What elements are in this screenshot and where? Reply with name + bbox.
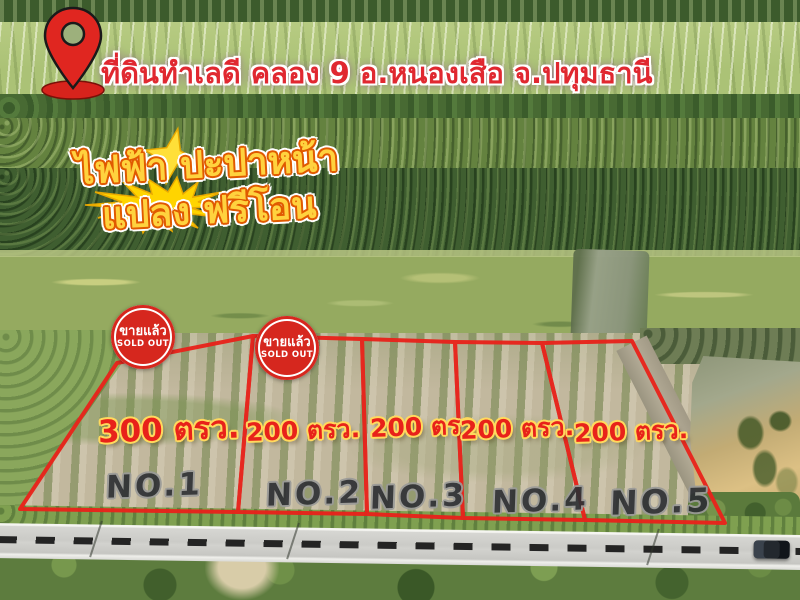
- plot-5-number-label: NO.5: [609, 480, 713, 523]
- plot-2-size-label: 200 ตรว.: [245, 409, 360, 453]
- plot-1-size-label: 300 ตรว.: [97, 402, 240, 457]
- plot-2-number-label: NO.2: [265, 474, 363, 513]
- plot-4-size-label: 200 ตรว.: [459, 407, 574, 451]
- plot-3-number-label: NO.3: [369, 477, 467, 516]
- land-sale-ad-poster: 300 ตรว. 200 ตรว. 200 ตรว. 200 ตรว. 200 …: [0, 0, 800, 600]
- sold-out-badge-plot-2: ขายแล้ว SOLD OUT: [255, 316, 319, 380]
- feature-text-block: ไฟฟ้า ปะปาหน้า แปลง ฟรีโอน: [46, 134, 370, 243]
- plot-5-size-label: 200 ตรว.: [573, 410, 688, 454]
- ad-title: ที่ดินทำเลดี คลอง 9 อ.หนองเสือ จ.ปทุมธาน…: [101, 50, 652, 96]
- sold-out-badge-plot-1: ขายแล้ว SOLD OUT: [111, 305, 175, 369]
- plot-1-number-label: NO.1: [105, 466, 203, 505]
- sold-out-english-text: SOLD OUT: [261, 351, 313, 361]
- sold-out-english-text: SOLD OUT: [117, 340, 169, 350]
- plot-4-number-label: NO.4: [491, 481, 589, 520]
- sold-out-thai-text: ขายแล้ว: [263, 336, 310, 351]
- sold-out-thai-text: ขายแล้ว: [119, 325, 166, 340]
